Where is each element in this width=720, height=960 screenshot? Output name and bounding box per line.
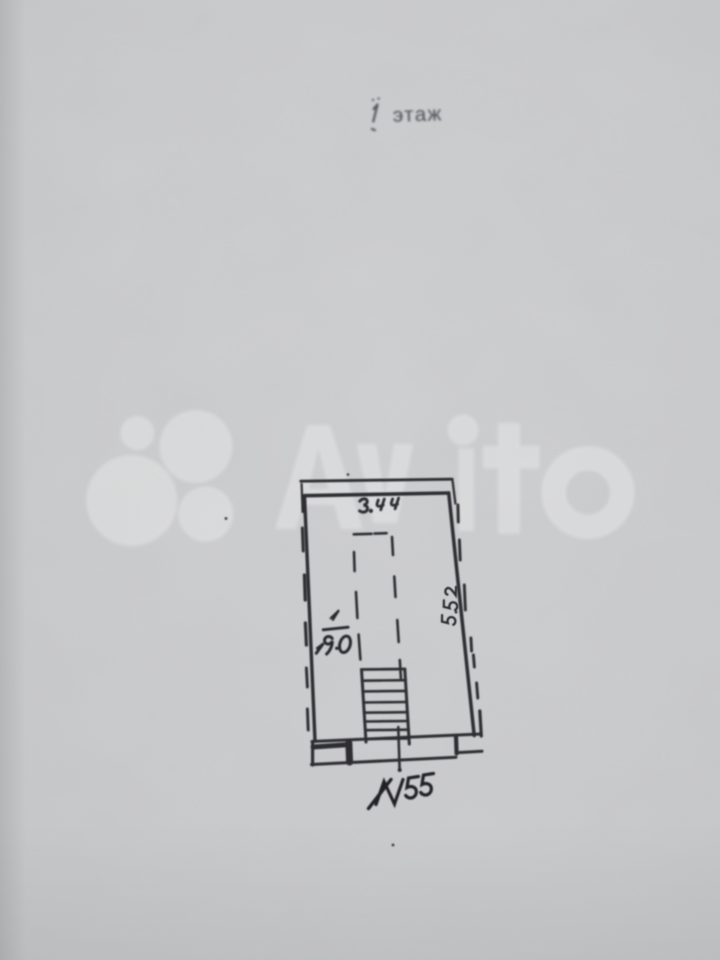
svg-text:этаж: этаж (392, 102, 443, 127)
